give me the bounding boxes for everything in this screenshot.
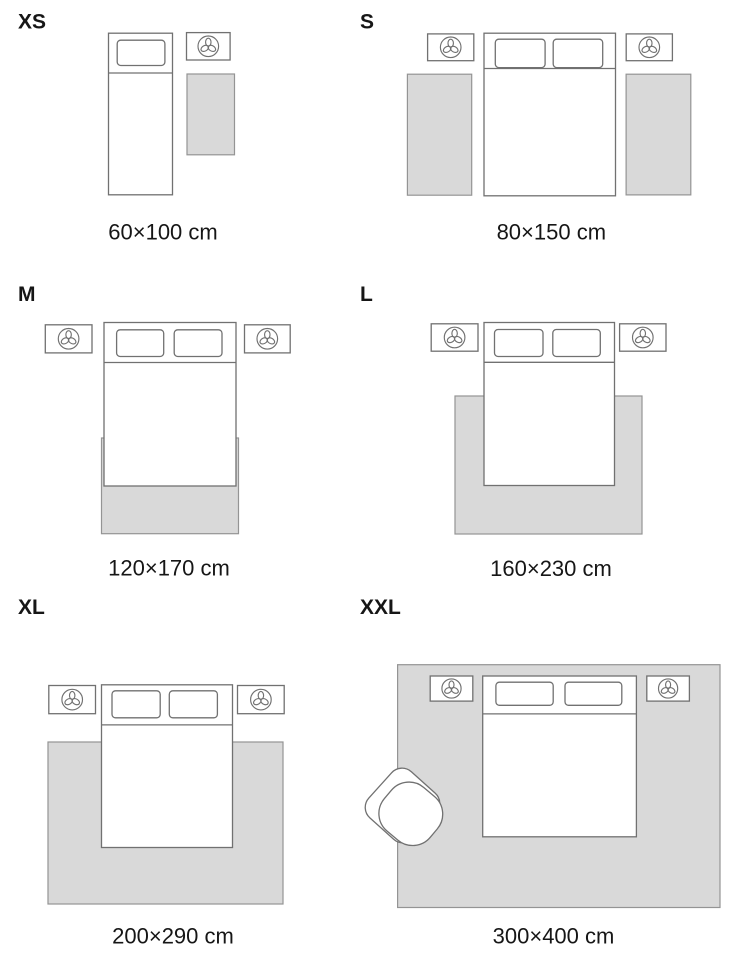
svg-text:M: M (18, 283, 36, 306)
svg-text:200×290 cm: 200×290 cm (112, 924, 234, 949)
svg-text:160×230 cm: 160×230 cm (490, 556, 612, 581)
svg-text:XL: XL (18, 596, 45, 619)
svg-text:120×170 cm: 120×170 cm (108, 556, 230, 581)
svg-text:XS: XS (18, 11, 46, 34)
svg-text:60×100 cm: 60×100 cm (108, 220, 217, 245)
svg-text:80×150 cm: 80×150 cm (497, 220, 606, 245)
svg-text:L: L (360, 283, 373, 306)
svg-text:S: S (360, 11, 374, 34)
svg-text:300×400 cm: 300×400 cm (493, 924, 615, 949)
svg-text:XXL: XXL (360, 596, 401, 619)
